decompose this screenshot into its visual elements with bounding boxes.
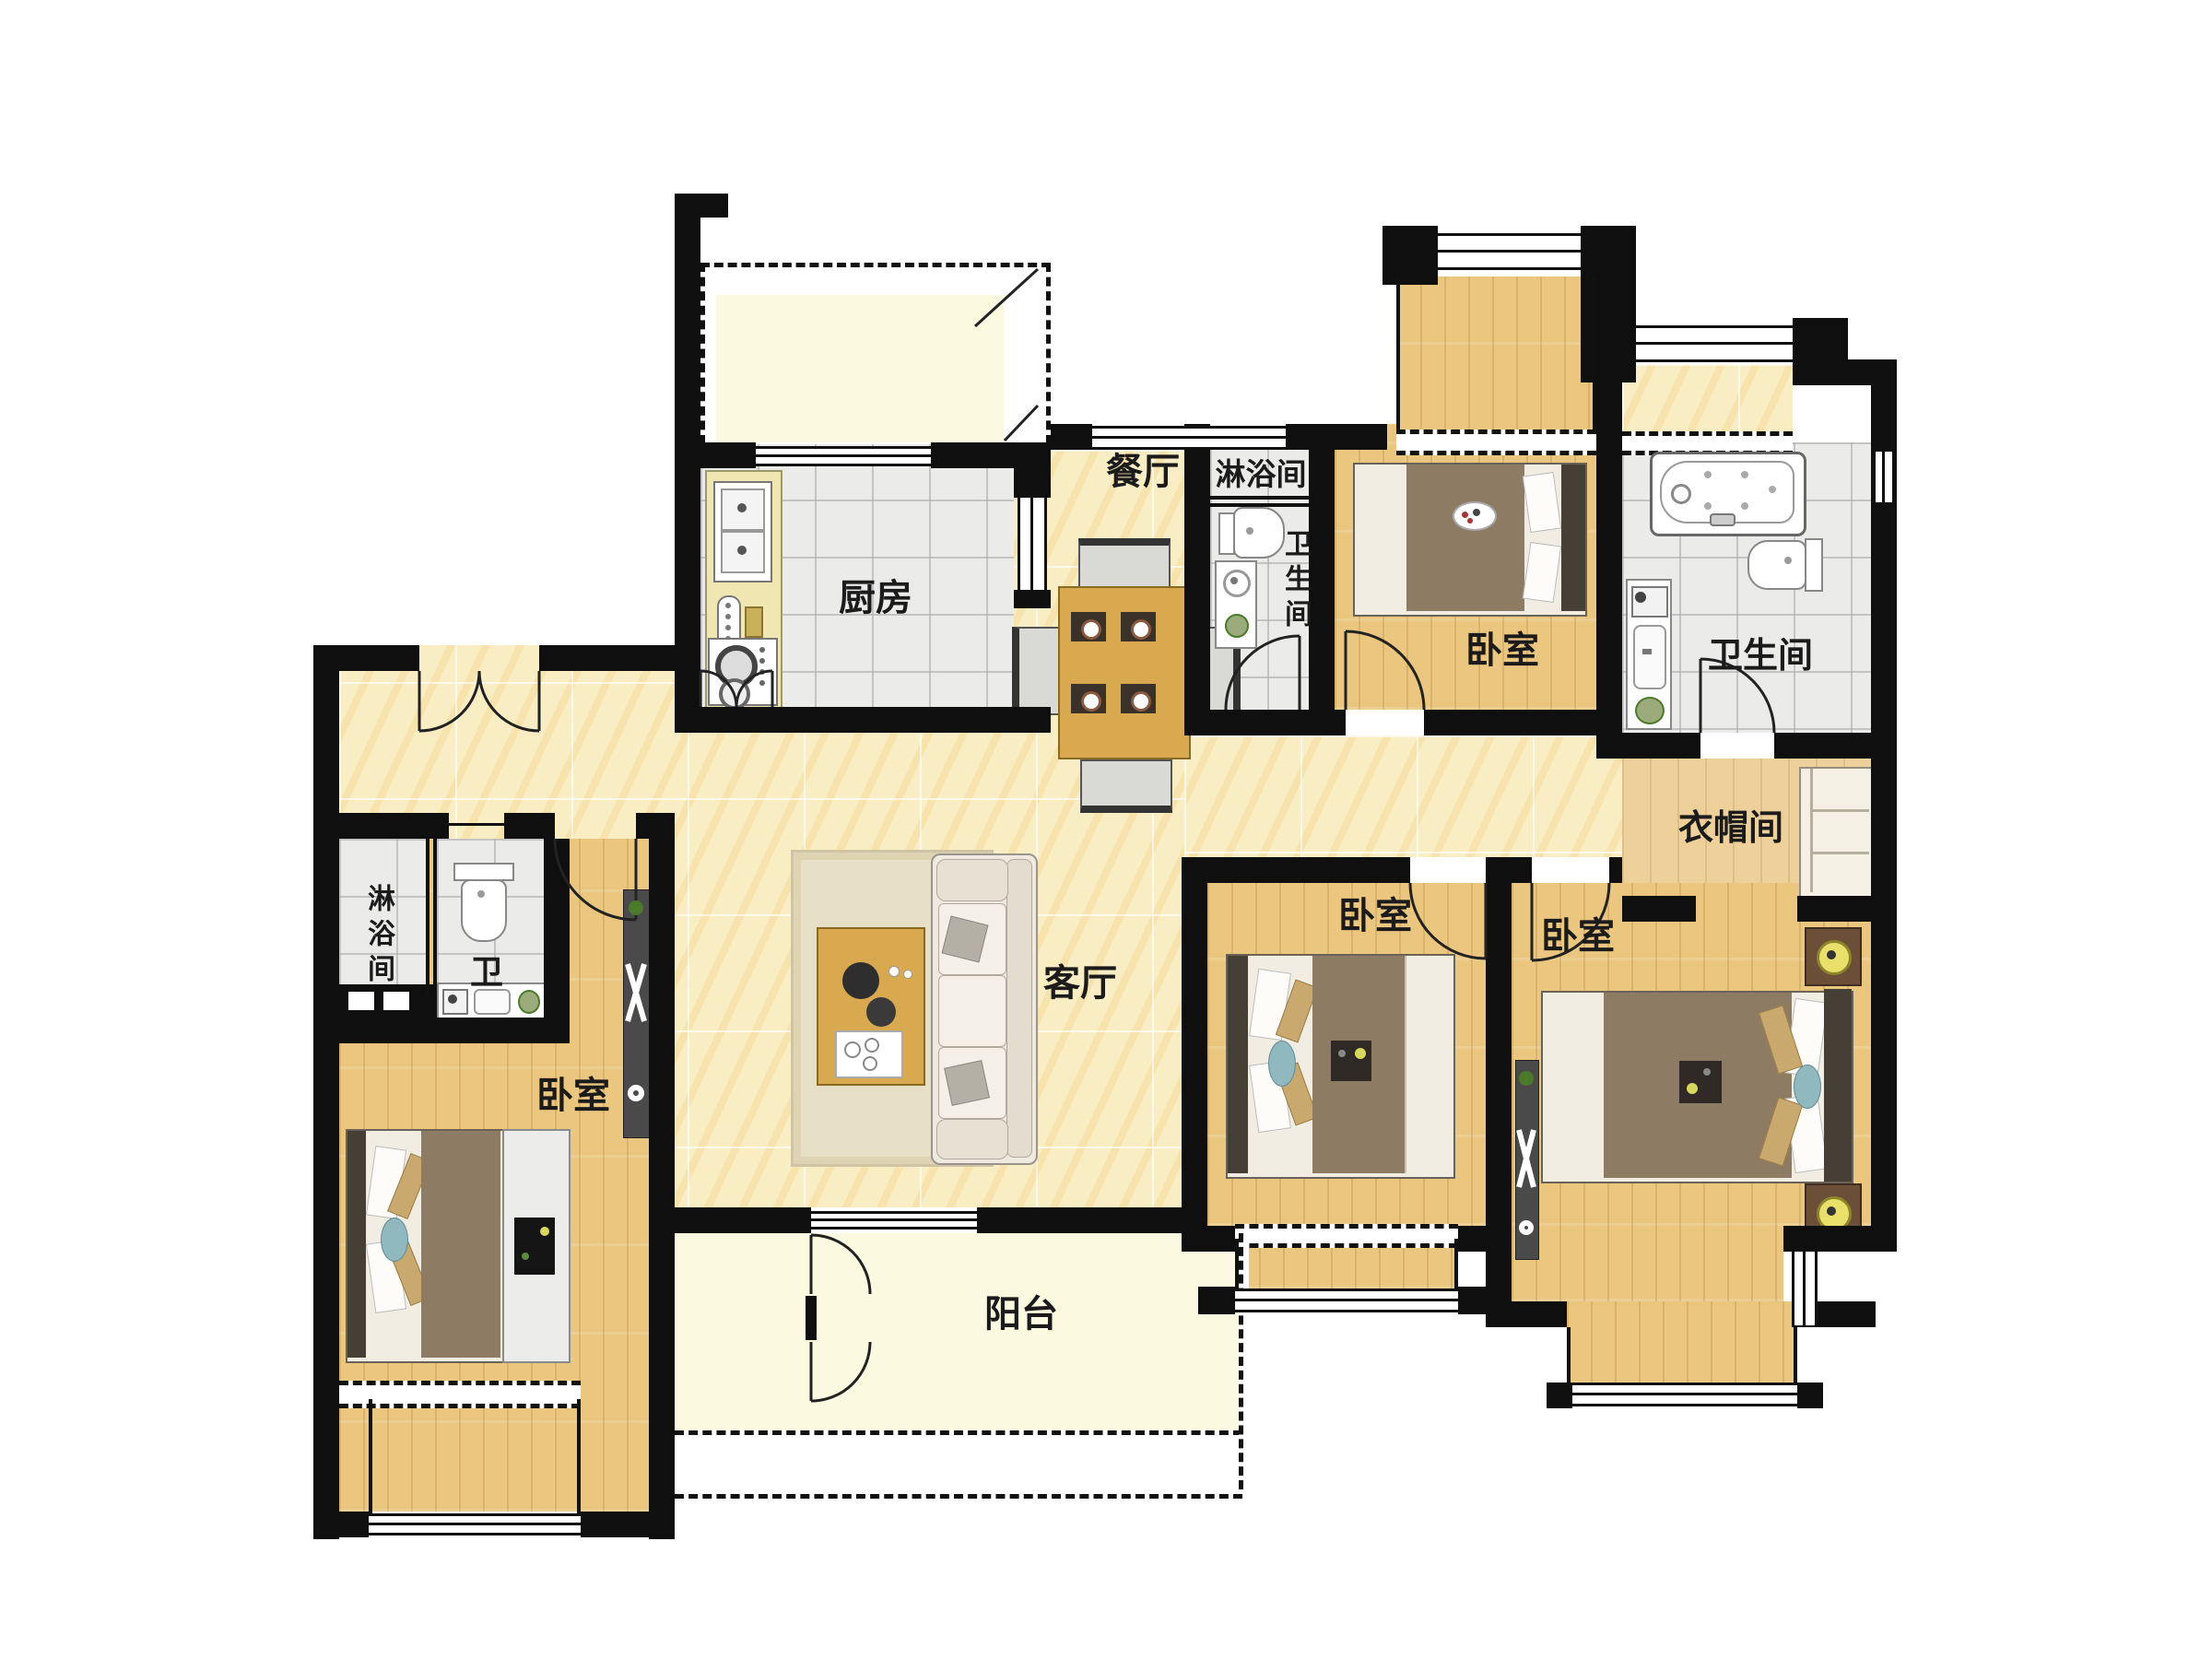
- wall: [339, 1018, 570, 1043]
- bed-blanket: [1406, 465, 1524, 611]
- bedroom-ne-bay-floor: [1396, 276, 1596, 433]
- room-label-wc-west: 卫: [465, 947, 509, 992]
- bay-pillar: [1458, 1287, 1512, 1314]
- dining-table: [1058, 586, 1191, 759]
- kitchen-spice-box: [745, 606, 763, 638]
- balcony-sliding-opening: [811, 1211, 977, 1230]
- wall: [1014, 590, 1051, 608]
- nightstand-top: [1805, 927, 1862, 986]
- room-label-bedroom-ne: 卧室: [1447, 627, 1558, 667]
- window-bathroom-notch: [1873, 452, 1895, 502]
- bay-side-line: [577, 1399, 581, 1513]
- bed-pillow-blue: [1268, 1041, 1296, 1087]
- bedroom-master-bay-floor: [1567, 1301, 1797, 1384]
- sink-drain-dot1: [737, 503, 747, 512]
- bay-side-line: [1396, 276, 1400, 431]
- wall: [1609, 857, 1622, 883]
- sofa-arm-bottom: [936, 1119, 1008, 1159]
- wall: [339, 813, 449, 839]
- room-label-wc-north: 卫生间: [1279, 512, 1311, 651]
- bed-master: [1541, 991, 1853, 1183]
- wall: [1486, 883, 1512, 1327]
- wall: [1182, 857, 1207, 1226]
- bedroom-master-floor-lower: [1512, 1226, 1783, 1301]
- window-bedroom-ne-bay: [1438, 233, 1581, 270]
- sofa-arm-top: [936, 859, 1008, 901]
- wall: [1596, 359, 1622, 759]
- wall: [1424, 710, 1622, 735]
- opening-threshold: [449, 823, 504, 826]
- wall: [1182, 857, 1410, 883]
- wall: [313, 645, 419, 671]
- wall: [1014, 442, 1051, 498]
- tv-panel: [514, 1218, 555, 1275]
- wall: [649, 1207, 811, 1233]
- sofa-back: [1006, 859, 1032, 1158]
- decor-tray: [1331, 1041, 1371, 1081]
- wall: [313, 645, 339, 1539]
- kettle-small: [866, 997, 896, 1027]
- room-label-bedroom-master: 卧室: [1523, 912, 1633, 953]
- balcony-railing-side: [1239, 1233, 1249, 1489]
- room-label-living: 客厅: [1025, 959, 1135, 1001]
- room-label-kitchen: 厨房: [820, 575, 931, 614]
- wall: [700, 707, 1051, 733]
- bed-pillow-blue: [1794, 1065, 1821, 1109]
- bed-northeast: [1353, 463, 1587, 617]
- bed-southwest: [346, 1129, 506, 1363]
- toilet-west: [452, 863, 514, 942]
- kitchen-pass-opening: [1018, 498, 1047, 590]
- window-master-side: [1792, 1252, 1818, 1325]
- bathroom-east-bay-floor: [1622, 364, 1793, 436]
- wall: [1486, 857, 1532, 883]
- shower-partition-north: [1210, 496, 1309, 500]
- toilet-east: [1747, 536, 1821, 592]
- sofa-pillow2: [944, 1060, 990, 1106]
- wall: [675, 194, 728, 218]
- bay-cap: [1547, 1382, 1572, 1408]
- bay-side-line: [1235, 1239, 1239, 1290]
- wall: [1182, 1226, 1235, 1252]
- balcony-door-post: [806, 1296, 817, 1340]
- wall: [649, 839, 675, 1539]
- placemat: [1121, 684, 1156, 713]
- shower-partition-west: [426, 839, 429, 995]
- vanity-north: [1215, 560, 1257, 649]
- wall: [544, 839, 570, 1043]
- wall: [581, 1512, 675, 1537]
- dining-chair-bottom: [1080, 759, 1172, 813]
- placemat: [1121, 612, 1156, 641]
- bed-pillow: [1523, 472, 1561, 533]
- kitchen-hob: [708, 638, 778, 706]
- bed-pillow: [1523, 542, 1561, 603]
- window-master-bay: [1572, 1382, 1797, 1406]
- wall: [636, 813, 675, 839]
- bedroom-sw-bay-sill: [339, 1381, 581, 1408]
- dining-chair-top: [1078, 538, 1171, 592]
- balcony-floor: [675, 1233, 1242, 1430]
- bed-middle: [1226, 954, 1455, 1179]
- vanity-east: [1626, 579, 1672, 730]
- dining-chair-left: [1012, 627, 1062, 715]
- bedroom-ne-bay-sill: [1396, 429, 1596, 455]
- tub-faucet: [1710, 513, 1735, 526]
- wall: [977, 1207, 1182, 1233]
- bed-headboard: [1561, 465, 1585, 611]
- dresser-tv-southwest: [502, 1129, 571, 1363]
- wall: [1458, 1226, 1486, 1252]
- room-label-bedroom-mid: 卧室: [1320, 892, 1430, 933]
- kettle-large: [842, 962, 879, 999]
- hob-wok-ring: [719, 678, 750, 710]
- tv-console-master: [1515, 1060, 1539, 1260]
- wall: [1797, 896, 1897, 922]
- shower-partition-north: [1210, 503, 1309, 507]
- window-bedroom-mid-bay: [1235, 1288, 1458, 1312]
- built-in-closet: [1799, 767, 1875, 898]
- bay-pillar: [1382, 226, 1438, 285]
- plant: [1635, 697, 1665, 724]
- room-label-bedroom-sw: 卧室: [518, 1072, 629, 1112]
- coffee-table: [817, 927, 925, 1086]
- bed-headboard: [347, 1131, 366, 1358]
- wall: [1783, 1226, 1897, 1252]
- bed-headboard: [1228, 956, 1248, 1173]
- wall: [1512, 1301, 1567, 1327]
- bed-pillow-blue: [381, 1218, 408, 1262]
- sofa: [931, 853, 1038, 1165]
- bay-side-line: [1454, 1239, 1458, 1290]
- bed-quilt: [1405, 956, 1452, 1173]
- bedroom-mid-bay-sill: [1235, 1224, 1458, 1248]
- floor-plan: 厨房 餐厅 淋浴间 卫生间 卧室 卫生间 衣帽间 客厅 卧室 卧室 阳台 淋浴间…: [0, 0, 2212, 1659]
- wall: [1774, 733, 1897, 759]
- decor-tray: [1453, 501, 1497, 531]
- window-bathroom-bay: [1636, 325, 1793, 362]
- window-kitchen: [756, 446, 931, 466]
- placemat: [1071, 612, 1106, 641]
- window-bedroom-sw-bay: [369, 1513, 581, 1535]
- wall: [1596, 733, 1700, 759]
- corridor-floor: [1184, 735, 1622, 857]
- wall: [675, 194, 700, 733]
- bay-cap: [1797, 1382, 1823, 1408]
- plant: [1225, 614, 1249, 638]
- sofa-seat2: [938, 975, 1006, 1047]
- wall: [504, 813, 555, 839]
- wall: [1622, 896, 1696, 922]
- wall: [539, 645, 675, 671]
- bay-pillar: [1581, 226, 1636, 382]
- decor-tray: [1679, 1061, 1722, 1103]
- wall: [1051, 424, 1092, 450]
- room-label-shower-north: 淋浴间: [1196, 453, 1325, 490]
- basin: [1633, 625, 1666, 689]
- shower-partition-west: [433, 839, 437, 995]
- placemat: [1071, 684, 1106, 713]
- sink-drain-dot2: [737, 546, 747, 555]
- bed-headboard: [1824, 989, 1852, 1182]
- bed-blanket: [421, 1131, 500, 1358]
- outside-patch-topleft: [276, 369, 675, 645]
- balcony-railing: [675, 1430, 1242, 1499]
- plant: [518, 990, 540, 1014]
- room-label-shower-west: 淋浴间: [361, 865, 394, 1008]
- room-label-closet: 衣帽间: [1670, 805, 1792, 843]
- bay-side-line: [369, 1399, 372, 1513]
- kitchen-sink: [713, 481, 772, 582]
- bathtub: [1650, 452, 1806, 536]
- bay-side-line: [1567, 1327, 1571, 1386]
- wall: [1286, 424, 1387, 450]
- bed-quilt: [1355, 465, 1408, 611]
- room-label-balcony: 阳台: [966, 1290, 1077, 1331]
- tea-tray: [835, 1030, 903, 1078]
- bay-side-line: [1794, 1327, 1797, 1386]
- wall: [700, 442, 756, 468]
- room-label-bathroom-east: 卫生间: [1700, 631, 1820, 672]
- room-label-dining: 餐厅: [1088, 448, 1198, 488]
- wall: [1184, 710, 1346, 735]
- kitchen-flue-annex-inner: [716, 295, 1004, 442]
- bed-quilt: [1543, 993, 1606, 1178]
- bay-pillar: [1198, 1287, 1235, 1314]
- bay-side-line: [1593, 276, 1596, 431]
- wall: [313, 1512, 369, 1537]
